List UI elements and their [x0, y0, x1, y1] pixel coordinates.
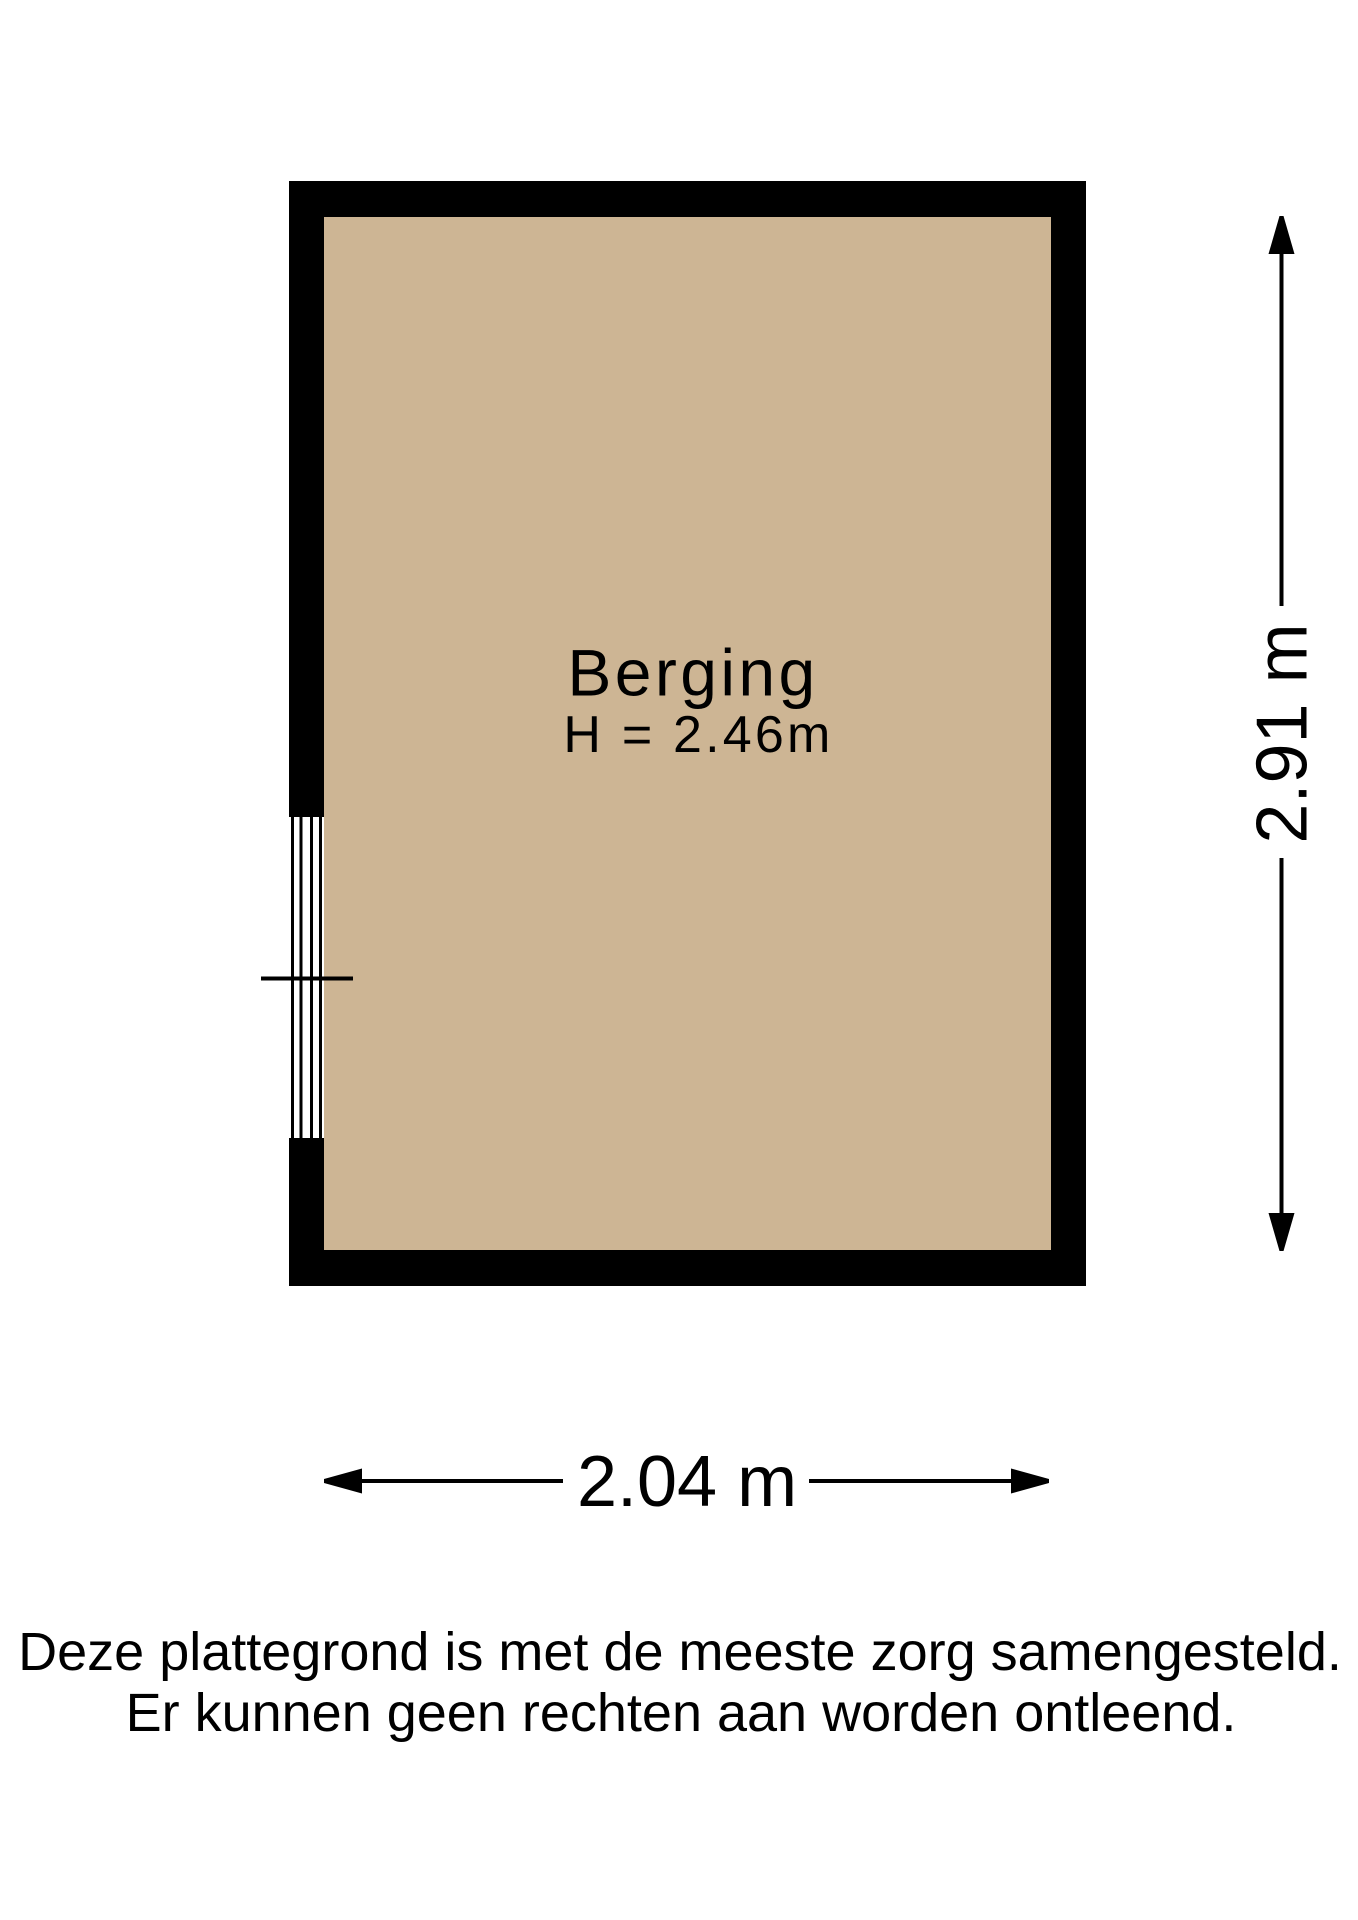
- svg-text:2.91 m: 2.91 m: [1243, 623, 1323, 843]
- svg-text:2.04 m: 2.04 m: [577, 1442, 797, 1522]
- svg-text:Berging: Berging: [567, 636, 818, 710]
- svg-text:Er kunnen geen rechten aan wor: Er kunnen geen rechten aan worden ontlee…: [126, 1683, 1237, 1743]
- svg-text:Deze plattegrond is met de mee: Deze plattegrond is met de meeste zorg s…: [18, 1622, 1342, 1682]
- svg-text:H = 2.46m: H = 2.46m: [563, 706, 833, 764]
